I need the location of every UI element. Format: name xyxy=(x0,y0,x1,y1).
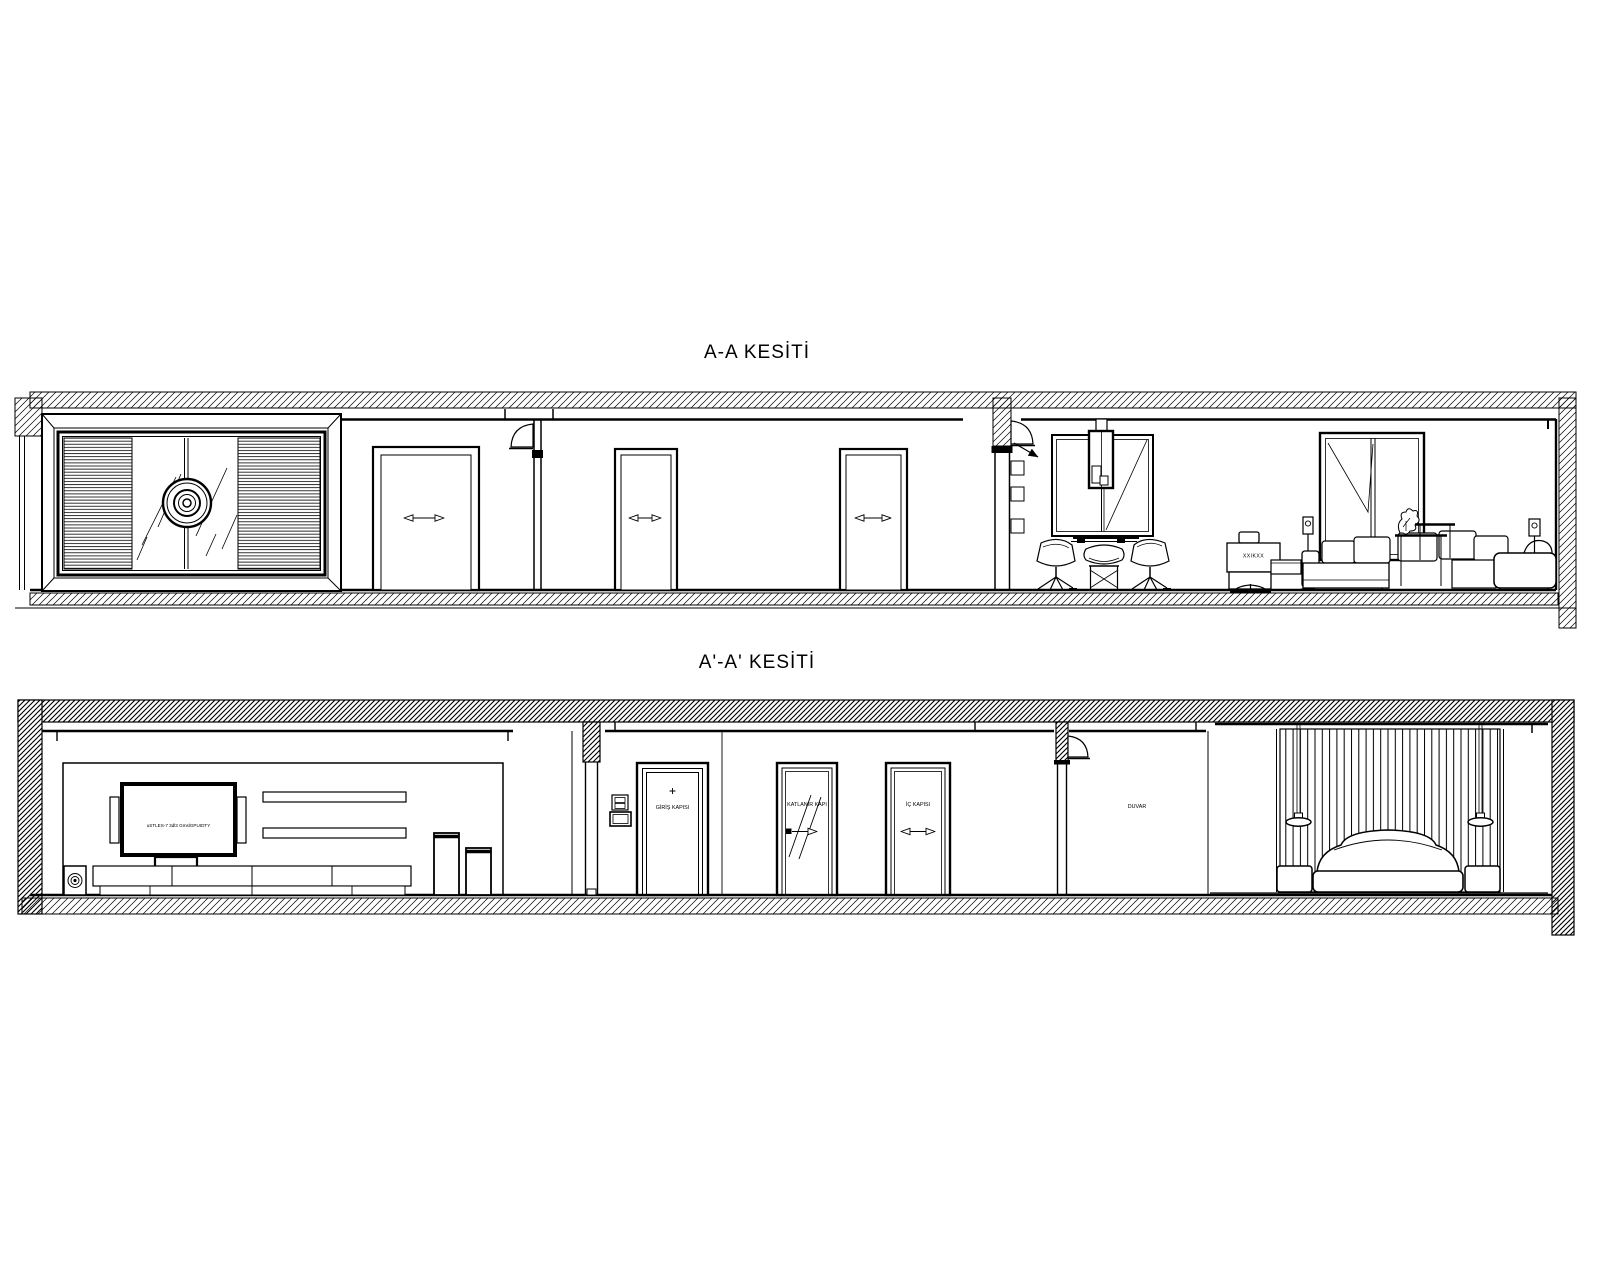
section-aa-title: A-A KESİTİ xyxy=(704,342,810,363)
tv-console xyxy=(93,866,411,895)
dining-table xyxy=(1071,538,1139,544)
office-chair: XXIKXX xyxy=(1227,532,1301,592)
tv-screen xyxy=(122,784,235,855)
ab-bedroom xyxy=(1277,724,1504,892)
ab-partition-1 xyxy=(572,722,600,895)
wall-lamp-icon xyxy=(511,424,533,447)
blind-panel-right xyxy=(238,438,320,569)
tall-cabinet-boxes xyxy=(434,833,491,895)
aa-left-wall xyxy=(15,398,42,590)
drawing-canvas: A-A KESİTİ xyxy=(0,0,1600,1280)
aa-partition-wall xyxy=(509,420,543,591)
aa-floor xyxy=(15,590,1576,608)
aa-dining-unit xyxy=(1035,419,1171,591)
ab-folding-door: KATLANIR KAPI xyxy=(777,763,837,895)
entry-door-label: GİRİŞ KAPISI xyxy=(656,804,690,811)
round-ornament xyxy=(163,479,211,527)
elevation-sections-svg: A-A KESİTİ xyxy=(0,0,1600,1280)
ab-interior-door: İÇ KAPISI xyxy=(886,763,950,895)
side-sconce-right xyxy=(237,797,246,843)
light-switches xyxy=(610,795,631,826)
aa-door-2 xyxy=(615,449,677,590)
side-sconce-left xyxy=(110,797,119,843)
pendant-lamp xyxy=(1089,419,1113,488)
aa-service-column xyxy=(992,398,1039,590)
aa-door-3 xyxy=(840,449,907,590)
wall-lamp-icon xyxy=(1011,421,1033,444)
shelf-bar xyxy=(263,792,406,802)
section-aa-prime-title: A'-A' KESİTİ xyxy=(699,652,815,673)
aa-door-1 xyxy=(373,447,479,590)
nightstand-right xyxy=(1465,866,1500,892)
aa-right-wall xyxy=(1556,398,1576,628)
chair-monogram: XXIKXX xyxy=(1243,554,1264,560)
section-aa-prime: A'-A' KESİTİ u xyxy=(18,652,1574,935)
section-aa: A-A KESİTİ xyxy=(15,342,1576,628)
wall-lamp-icon xyxy=(1068,736,1088,757)
dining-chair-center xyxy=(1084,545,1124,590)
ab-partition-2 xyxy=(1054,722,1090,895)
wall-label: DUVAR xyxy=(1128,804,1147,810)
speaker-box xyxy=(64,866,86,895)
aa-mirror-cabinet xyxy=(42,414,341,591)
shelf-bar xyxy=(263,828,406,838)
nightstand-left xyxy=(1277,866,1312,892)
dining-chair-left xyxy=(1035,539,1077,590)
ab-left-wall xyxy=(18,700,42,914)
ab-entry-door: GİRİŞ KAPISI xyxy=(637,763,708,895)
aa-living-area: XXIKXX xyxy=(1227,433,1556,592)
interior-door-label: İÇ KAPISI xyxy=(906,801,930,808)
tv-screen-text: uSTLES-7 3dl3 GmslGPUIDTY xyxy=(147,823,211,828)
sofa-main xyxy=(1302,537,1390,591)
dining-chair-right xyxy=(1129,539,1171,590)
blind-panel-left xyxy=(64,438,132,569)
ab-tv-wall-unit: uSTLES-7 3dl3 GmslGPUIDTY xyxy=(63,763,503,895)
